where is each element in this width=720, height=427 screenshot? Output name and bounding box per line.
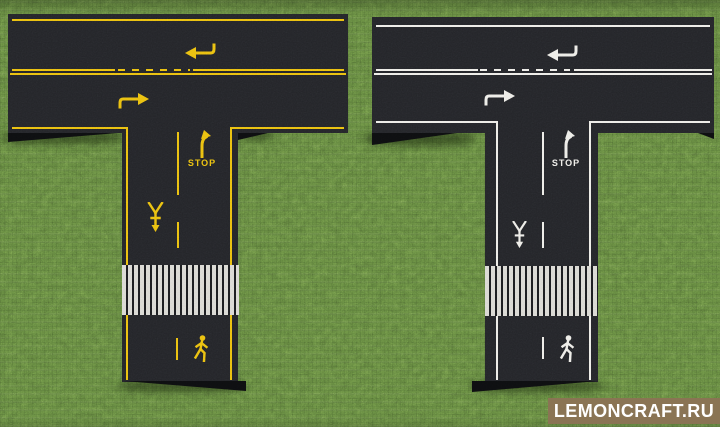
shadow [470, 380, 604, 392]
shadow [2, 131, 124, 144]
shadow [118, 380, 246, 392]
watermark-bar: LEMONCRAFT.RU [548, 398, 720, 424]
watermark-text: LEMONCRAFT.RU [554, 401, 714, 422]
shadow [240, 131, 274, 140]
minecraft-road-screenshot: STOP [0, 0, 720, 427]
grass-pixel-texture [0, 0, 720, 427]
shadow [364, 131, 474, 146]
